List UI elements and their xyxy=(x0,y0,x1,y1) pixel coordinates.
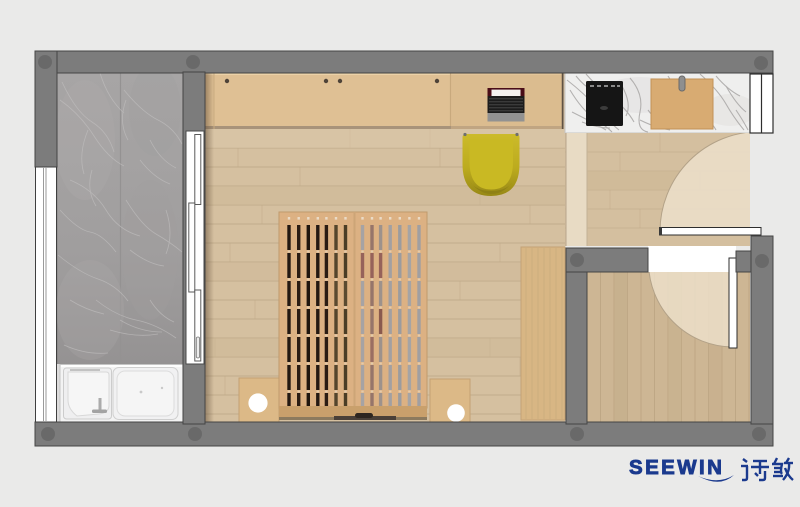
svg-text:SEEWIN: SEEWIN xyxy=(629,456,724,479)
